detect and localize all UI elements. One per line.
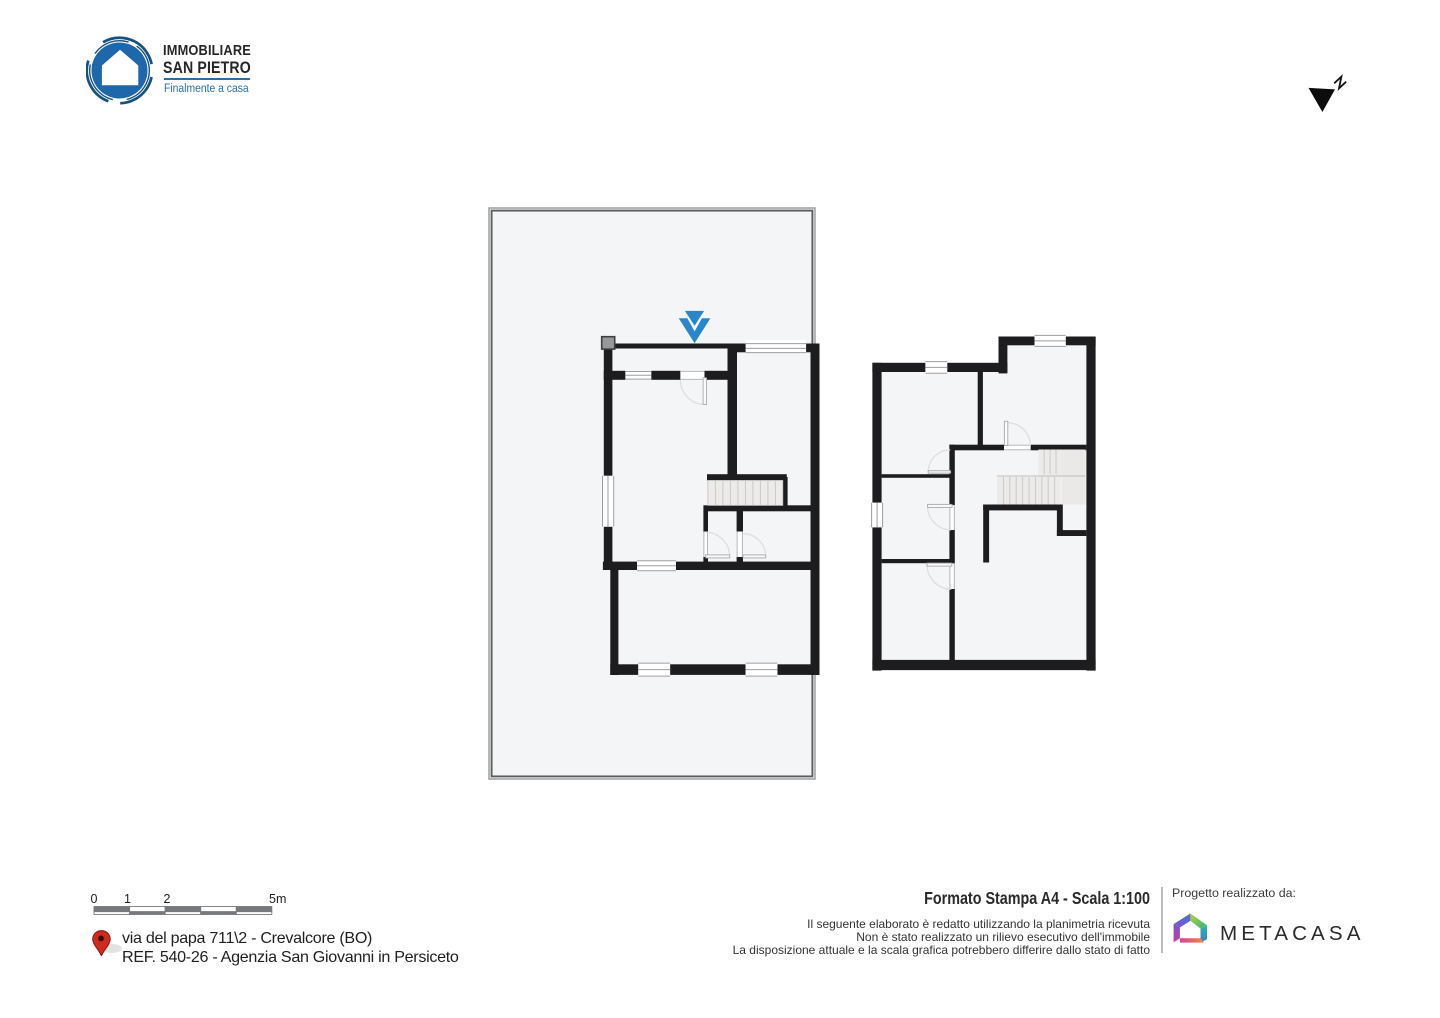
svg-text:0: 0 [91,892,98,906]
svg-text:5m: 5m [269,892,286,906]
svg-text:1: 1 [124,892,131,906]
svg-text:2: 2 [164,892,171,906]
